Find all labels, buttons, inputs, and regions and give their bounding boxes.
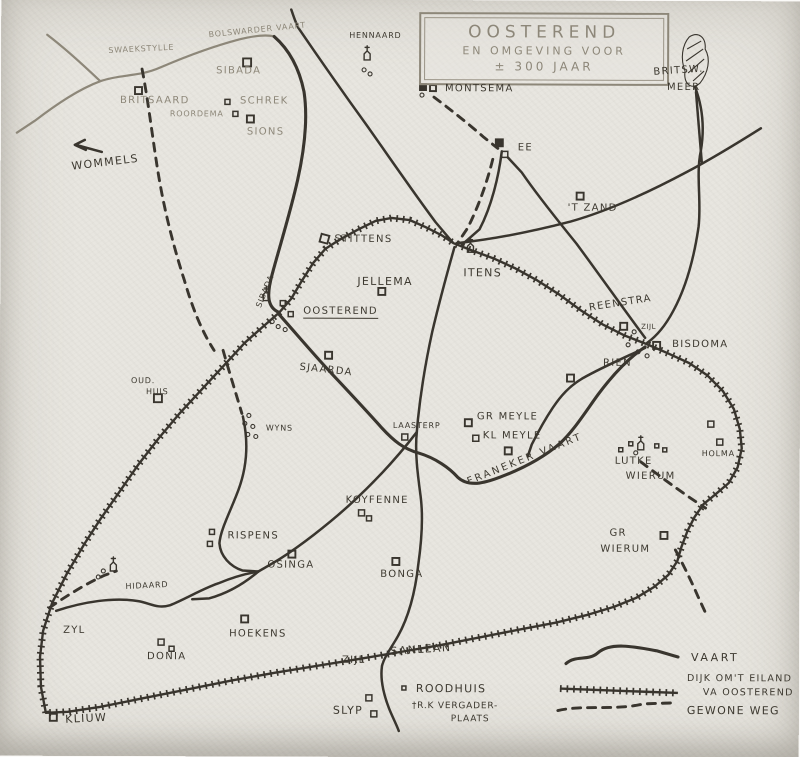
legend-label-weg: GEWONE WEG (687, 704, 780, 717)
scanned-map-page: OOSTEREND EN OMGEVING VOOR ± 300 JAAR SW… (0, 0, 800, 757)
church-marker (110, 557, 116, 571)
map-subtitle: EN OMGEVING VOOR (431, 44, 657, 58)
osinga-south-road (192, 571, 258, 599)
building-marker (366, 695, 372, 701)
building-marker (473, 435, 479, 441)
building-marker (207, 541, 212, 546)
label-gr-meyle: GR MEYLE (477, 411, 538, 422)
label-rk-plaats: PLAATS (451, 714, 490, 724)
label-holma: HOLMA (702, 449, 735, 458)
building-marker (241, 615, 248, 622)
legend-symbols (558, 646, 678, 711)
building-marker (367, 516, 372, 521)
label-rk-vergader: †R.K VERGADER- (412, 701, 498, 711)
map-paper: OOSTEREND EN OMGEVING VOOR ± 300 JAAR SW… (0, 0, 800, 757)
building-marker (320, 234, 330, 244)
building-marker (402, 686, 406, 690)
building-marker (402, 434, 408, 440)
building-marker (233, 111, 238, 116)
building-marker (577, 193, 584, 200)
legend-vaart-line (566, 646, 678, 664)
label-montsema: MONTSEMA (445, 83, 514, 94)
label-meer: MEER (667, 82, 700, 93)
building-marker (135, 87, 142, 94)
label-schrek: SCHREK (240, 95, 289, 106)
label-stittens: STITTENS (334, 234, 392, 245)
building-marker (371, 711, 377, 717)
gewone-wegen (49, 69, 707, 612)
building-marker (708, 421, 714, 427)
legend-label-dijk-2: VA OOSTEREND (703, 687, 794, 698)
britswerder-meer-lake (682, 35, 708, 87)
building-marker (660, 532, 667, 539)
label-zand: 'T ZAND (568, 203, 618, 214)
building-marker (620, 323, 627, 330)
label-roordema: ROORDEMA (170, 109, 224, 118)
building-marker (392, 558, 399, 565)
montsema-ee-weg (434, 97, 498, 148)
label-wyns: WYNS (266, 424, 293, 433)
building-marker (505, 447, 512, 454)
building-marker (288, 312, 293, 317)
label-kliuw: KLIUW (65, 711, 108, 726)
legend-label-vaart: VAART (691, 651, 739, 664)
sibada-road-path (269, 37, 306, 313)
vaart-and-roads (15, 9, 762, 733)
itens-south-road (381, 247, 454, 731)
topleft-branch-path (47, 35, 100, 81)
title-inner-frame: OOSTEREND EN OMGEVING VOOR ± 300 JAAR (424, 17, 664, 81)
church-marker (638, 436, 644, 450)
ee-itens-road (461, 151, 501, 245)
label-wierum-lutke: WIERUM (626, 471, 676, 482)
label-britsaard: BRITSAARD (120, 95, 190, 106)
label-gr-wierum-2: WIERUM (600, 544, 650, 555)
label-hennaard: HENNAARD (349, 31, 401, 40)
meer-stream (647, 87, 703, 343)
map-title: OOSTEREND (431, 22, 657, 43)
building-marker (655, 444, 659, 448)
building-marker (378, 288, 385, 295)
grwierum-weg (675, 550, 705, 612)
label-huis: HUIS (146, 387, 169, 396)
label-donia: DONIA (147, 651, 186, 662)
ee-itens-weg (457, 159, 492, 243)
building-marker (158, 639, 164, 645)
building-marker (717, 439, 723, 445)
building-marker (619, 448, 623, 452)
building-marker (567, 375, 574, 382)
label-roodhuis: ROODHUIS (416, 682, 486, 695)
legend-weg-line (558, 703, 672, 711)
label-oud: OUD. (131, 376, 155, 385)
label-zyl-west: ZYL (63, 625, 85, 636)
building-marker (280, 301, 285, 306)
label-sibada-village: SIBADA (216, 65, 261, 76)
label-osinga: OSINGA (267, 560, 314, 571)
label-rispens: RISPENS (227, 530, 279, 541)
label-jellema: JELLEMA (357, 275, 413, 288)
label-itens: ITENS (463, 266, 502, 279)
label-zijl-sanlean: ZIJL (342, 655, 366, 666)
label-lutke: LUTKE (615, 456, 653, 467)
wommels-arrow (75, 140, 102, 152)
label-oosterend: OOSTEREND (303, 306, 378, 319)
map-subtitle-years: ± 300 JAAR (431, 59, 657, 74)
building-marker (209, 529, 214, 534)
lutkewierum-weg (641, 462, 706, 508)
label-slyp: SLYP (333, 704, 363, 717)
label-hoekens: HOEKENS (229, 628, 287, 639)
building-marker (225, 99, 230, 104)
building-marker (325, 352, 332, 359)
label-zijl-reenstra: ZIJL (641, 323, 656, 331)
building-marker (496, 139, 503, 146)
label-sions: SIONS (247, 126, 285, 137)
label-laasterp: LAASTERP (393, 421, 441, 430)
label-ee: EE (518, 142, 533, 153)
building-marker (663, 448, 667, 452)
building-marker (430, 85, 436, 91)
building-marker (247, 115, 254, 122)
franeker-vaart-path (279, 315, 646, 484)
label-kl-meyle: KL MEYLE (483, 430, 542, 441)
label-gr-wierum-1: GR (609, 528, 626, 539)
wyns-rispens-road (219, 416, 259, 571)
legend-label-dijk-1: DIJK OM'T EILAND (687, 673, 792, 684)
title-box: OOSTEREND EN OMGEVING VOOR ± 300 JAAR (419, 12, 669, 86)
label-koyfenne: KOYFENNE (346, 495, 409, 506)
label-bisdoma: BISDOMA (672, 339, 728, 350)
church-marker (364, 46, 370, 60)
building-marker (465, 419, 472, 426)
label-bonga: BONGA (380, 569, 423, 580)
building-marker (359, 510, 365, 516)
label-rien: RIEN (603, 358, 632, 369)
building-marker (629, 442, 633, 446)
